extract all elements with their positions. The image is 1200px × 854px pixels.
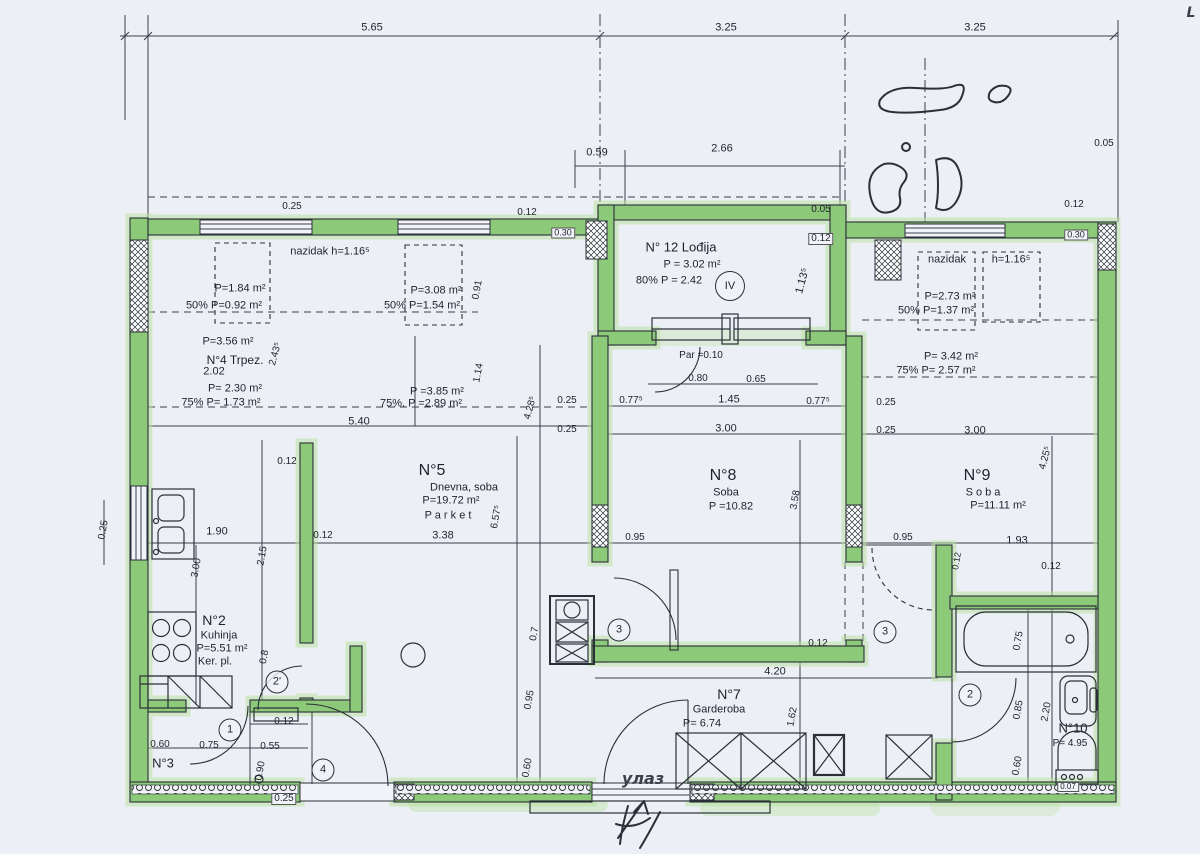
room10-number: N°10 xyxy=(1058,722,1087,735)
parapet-area: P=3.08 m² xyxy=(410,286,461,297)
door-mark-2: 2 xyxy=(959,684,982,707)
dim: 4.28⁵ xyxy=(523,395,539,420)
parapet-area-50: 50% P=0.92 m² xyxy=(186,301,262,312)
dim: 0.12 xyxy=(1064,200,1083,210)
dim: 0.75 xyxy=(1012,631,1025,652)
parapet-area-50: 50% P=1.54 m² xyxy=(384,301,460,312)
room8-number: N°8 xyxy=(710,468,737,484)
room8-area: P =10.82 xyxy=(709,502,753,513)
room2-name: Kuhinja xyxy=(201,631,238,642)
dim: 3.58 xyxy=(789,490,802,511)
dim: 0.77⁵ xyxy=(619,396,643,406)
room8-name: Soba xyxy=(713,488,739,499)
floorplan-canvas: 5.653.253.25L0.592.660.050.120.050.120.2… xyxy=(0,0,1200,854)
dim: 0.12 xyxy=(808,233,833,245)
room4-title: N°4 Trpez. xyxy=(207,354,264,366)
door-mark-1: 1 xyxy=(219,719,242,742)
dim: 0.75 xyxy=(199,741,218,751)
area-note: P =3.85 m² xyxy=(410,387,464,398)
parapet-area: P=2.73 m² xyxy=(924,292,975,303)
room5-name: Dnevna, soba xyxy=(430,483,498,494)
room4-area: P=3.56 m² xyxy=(202,337,253,348)
dim: 2.15 xyxy=(256,546,269,567)
dim: 0.95 xyxy=(625,533,644,543)
area-note-75: 75%. P =2.89 m² xyxy=(380,399,462,410)
dim: 0.12 xyxy=(1041,562,1060,572)
dim: 4.20 xyxy=(764,667,785,678)
dim: 0.05 xyxy=(811,205,830,215)
dim: 2.43⁵ xyxy=(268,341,284,366)
dim: 5.65 xyxy=(361,23,382,34)
dim: 0.95 xyxy=(523,690,536,711)
dim: 0.30 xyxy=(1064,230,1088,241)
dim: 0.12 xyxy=(951,552,963,571)
hand-mark: L xyxy=(1187,6,1196,20)
dim: 0.80 xyxy=(688,374,707,384)
room3-number: N°3 xyxy=(152,757,174,770)
dim: 2.66 xyxy=(711,144,732,155)
dim: 6.57⁵ xyxy=(490,505,504,530)
door-mark-3: 3 xyxy=(874,621,897,644)
dim: 1.45 xyxy=(718,395,739,406)
dim: 0.25 xyxy=(557,396,576,406)
dim: 0.85 xyxy=(1012,700,1025,721)
dim: 0.12 xyxy=(517,208,536,218)
door-mark-3: 3 xyxy=(608,619,631,642)
room9-number: N°9 xyxy=(964,468,991,484)
dim: 0.95 xyxy=(893,533,912,543)
room12-title: N° 12 Lođija xyxy=(646,241,717,254)
dim: 3.38 xyxy=(432,531,453,542)
dim: 1.90 xyxy=(206,527,227,538)
room2-number: N°2 xyxy=(202,613,226,627)
dim: 3.00 xyxy=(715,424,736,435)
dim: 4.25⁵ xyxy=(1038,445,1054,470)
dim: 1.93 xyxy=(1006,536,1027,547)
dim: 0.59 xyxy=(586,148,607,159)
dim: 0.12 xyxy=(313,531,332,541)
dim: 3.25 xyxy=(964,23,985,34)
room2-area: P=5.51 m² xyxy=(196,644,247,655)
area-note-75: 75% P= 2.57 m² xyxy=(896,366,975,377)
entrance-label: улаз xyxy=(622,771,664,787)
dim: 0.25 xyxy=(557,425,576,435)
dim: 0.91 xyxy=(471,280,484,301)
dim: 0.25 xyxy=(876,398,895,408)
door-mark-4: 4 xyxy=(312,759,335,782)
dim: 3.00 xyxy=(964,426,985,437)
dim: 0.25 xyxy=(282,202,301,212)
room4-area-75: 75% P= 1.73 m² xyxy=(181,398,260,409)
area-note: P= 3.42 m² xyxy=(924,352,978,363)
dim: 0.55 xyxy=(260,742,279,752)
dim: 1.13⁵ xyxy=(794,267,811,295)
room10-area: P= 4.95 xyxy=(1053,739,1088,749)
dim: 1.14 xyxy=(472,363,485,384)
door-mark-2p: 2' xyxy=(266,671,289,694)
parapet-note-left: nazidak h=1.16⁵ xyxy=(290,247,369,258)
parapet-note-right: nazidak xyxy=(928,255,966,266)
dim: 0.05 xyxy=(1094,139,1113,149)
dim: 5.40 xyxy=(348,417,369,428)
room9-area: P=11.11 m² xyxy=(970,501,1026,512)
room7-number: N°7 xyxy=(717,687,741,701)
room7-name: Garderoba xyxy=(693,705,746,716)
dim: 2.02 xyxy=(203,367,224,378)
dim: 0.12 xyxy=(274,717,293,727)
dim: 0.60 xyxy=(150,740,169,750)
dim: 0.65 xyxy=(746,375,765,385)
dim: 0.25 xyxy=(876,426,895,436)
room5-floor: P a r k e t xyxy=(425,511,472,522)
dim: 0.07 xyxy=(1057,782,1079,792)
labels-layer: 5.653.253.25L0.592.660.050.120.050.120.2… xyxy=(0,0,1200,854)
dim: 0.12 xyxy=(277,457,296,467)
dim: 0.7 xyxy=(529,626,541,641)
room7-area: P= 6.74 xyxy=(683,719,721,730)
dim: 0.60 xyxy=(521,758,534,779)
parapet-area: P=1.84 m² xyxy=(214,284,265,295)
room4-area-2: P= 2.30 m² xyxy=(208,384,262,395)
room12-area: P = 3.02 m² xyxy=(664,260,721,271)
parapet-area-50: 50% P=1.37 m² xyxy=(898,306,974,317)
dim: 2.20 xyxy=(1040,702,1053,723)
dim: 0.77⁵ xyxy=(806,397,830,407)
room5-area: P=19.72 m² xyxy=(422,496,479,507)
dim: 0.25 xyxy=(97,520,110,541)
dim: 0.8 xyxy=(259,649,271,664)
room12-area-80: 80% P = 2.42 xyxy=(636,276,702,287)
dim: 1.62 xyxy=(786,707,799,728)
dim: 3.00 xyxy=(190,558,203,579)
dim: 0.25 xyxy=(271,793,296,805)
dim: 0.30 xyxy=(551,228,575,239)
dim: 0.12 xyxy=(808,639,827,649)
dim: 3.25 xyxy=(715,23,736,34)
dim: 0.60 xyxy=(1011,756,1024,777)
dim: 0.90 xyxy=(254,761,267,782)
room2-floor: Ker. pl. xyxy=(198,657,232,668)
room5-number: N°5 xyxy=(419,463,446,479)
parapet-note-right-h: h=1.16⁵ xyxy=(992,255,1031,266)
room9-name: S o b a xyxy=(966,488,1001,499)
note-parquet: Par =0.10 xyxy=(679,351,723,361)
axis-mark-IV: IV xyxy=(715,271,745,301)
